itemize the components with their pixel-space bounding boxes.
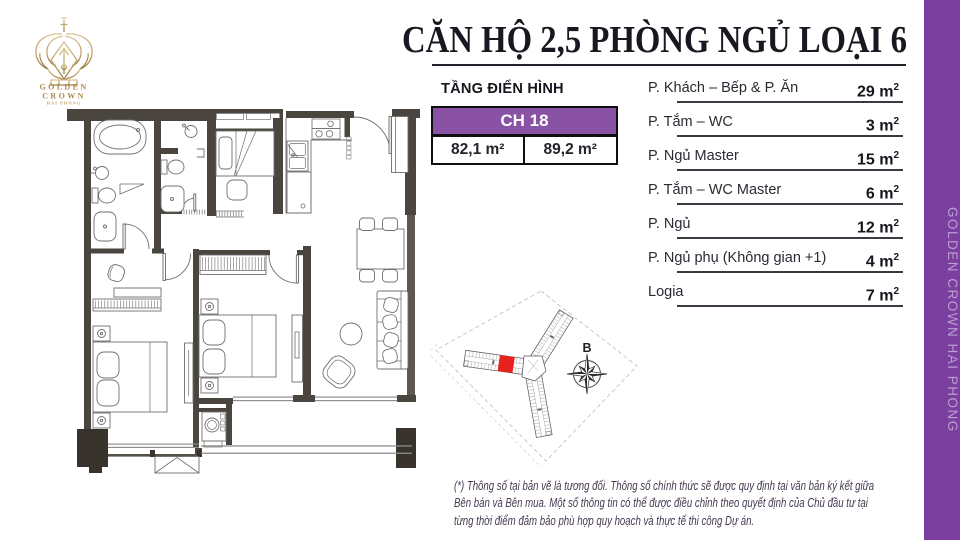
svg-text:B: B	[582, 341, 591, 355]
